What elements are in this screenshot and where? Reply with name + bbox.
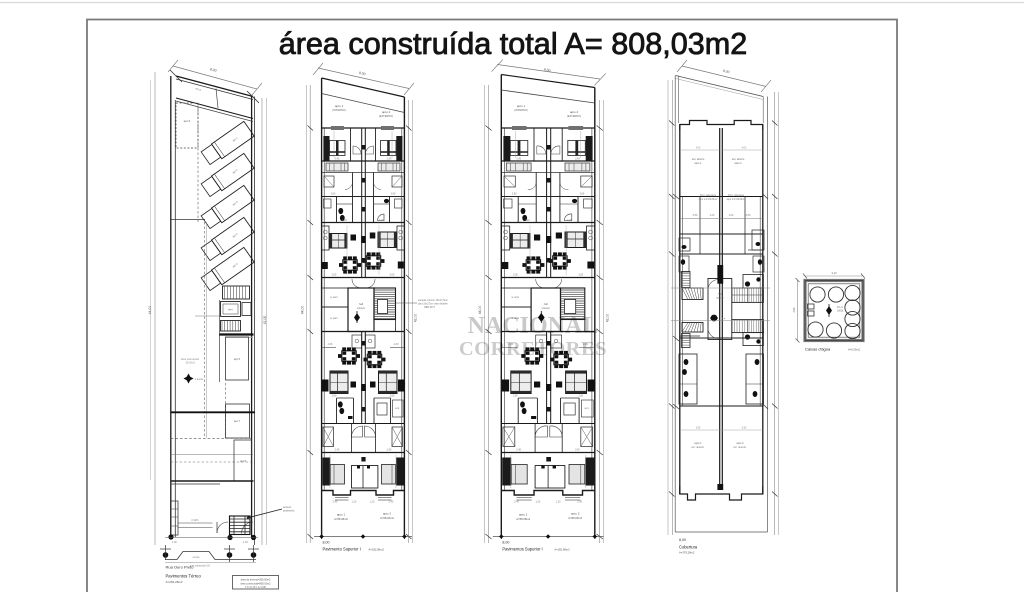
svg-text:A=182,98m2: A=182,98m2 bbox=[369, 548, 385, 552]
svg-text:3,05: 3,05 bbox=[390, 274, 395, 277]
svg-text:2,45: 2,45 bbox=[577, 501, 582, 504]
svg-text:a.m.: a.m. bbox=[395, 407, 400, 410]
svg-text:42,00: 42,00 bbox=[606, 314, 610, 323]
svg-text:Cobertura: Cobertura bbox=[679, 545, 698, 550]
svg-text:a. serv: a. serv bbox=[330, 296, 338, 299]
svg-text:i=12%: i=12% bbox=[191, 519, 199, 522]
svg-text:hall: hall bbox=[359, 302, 363, 306]
svg-text:2,30: 2,30 bbox=[328, 343, 333, 346]
svg-text:a.m.: a.m. bbox=[585, 407, 590, 410]
svg-text:1,20: 1,20 bbox=[342, 219, 347, 222]
svg-text:NACIONAL: NACIONAL bbox=[468, 313, 599, 339]
svg-text:terr. descob.: terr. descob. bbox=[733, 446, 746, 449]
svg-text:apto 2: apto 2 bbox=[736, 441, 744, 445]
svg-text:apto 2: apto 2 bbox=[570, 110, 579, 114]
svg-text:apto 2: apto 2 bbox=[382, 110, 391, 114]
svg-text:15,00m2: 15,00m2 bbox=[185, 362, 195, 365]
svg-text:1,00: 1,00 bbox=[172, 541, 177, 544]
svg-text:elev: elev bbox=[228, 308, 233, 312]
svg-text:2,80: 2,80 bbox=[391, 193, 396, 196]
svg-text:2,80: 2,80 bbox=[513, 395, 518, 398]
svg-text:1 árvore: 1 árvore bbox=[195, 378, 204, 381]
svg-text:Pavimentos Superior I: Pavimentos Superior I bbox=[502, 547, 542, 552]
svg-text:2,45: 2,45 bbox=[514, 501, 519, 504]
svg-text:2,30: 2,30 bbox=[394, 343, 399, 346]
svg-text:1,20: 1,20 bbox=[556, 501, 561, 504]
svg-text:hall: hall bbox=[718, 293, 722, 296]
svg-text:2,45: 2,45 bbox=[335, 449, 340, 452]
svg-text:b.q.: b.q. bbox=[722, 318, 726, 320]
svg-text:(INTERNO): (INTERNO) bbox=[332, 108, 346, 112]
svg-text:44,00: 44,00 bbox=[301, 306, 305, 315]
svg-text:Rua Ouro Preto: Rua Ouro Preto bbox=[166, 565, 195, 570]
svg-text:apto 1: apto 1 bbox=[695, 162, 703, 165]
svg-text:Caixas d'água: Caixas d'água bbox=[805, 347, 831, 352]
svg-text:1,20: 1,20 bbox=[525, 219, 530, 222]
svg-text:3,95: 3,95 bbox=[742, 428, 747, 430]
svg-text:A=9,30m2: A=9,30m2 bbox=[848, 348, 860, 352]
svg-text:1,20: 1,20 bbox=[243, 541, 248, 544]
svg-text:apto 1: apto 1 bbox=[517, 104, 526, 108]
svg-text:Proj. cobertura: Proj. cobertura bbox=[700, 194, 716, 197]
svg-text:apto 2: apto 2 bbox=[571, 512, 580, 516]
svg-text:Pavimento Superior I: Pavimento Superior I bbox=[323, 547, 361, 552]
svg-text:T.O.=0,70 C.A.=2,88: T.O.=0,70 C.A.=2,88 bbox=[245, 586, 267, 589]
svg-text:8,00: 8,00 bbox=[679, 538, 686, 542]
svg-text:1,20: 1,20 bbox=[536, 501, 541, 504]
svg-text:comum: comum bbox=[357, 307, 365, 310]
svg-text:2,45: 2,45 bbox=[575, 158, 580, 161]
svg-text:2,45: 2,45 bbox=[387, 158, 392, 161]
svg-text:apt 9: apt 9 bbox=[184, 119, 191, 123]
svg-text:2,80: 2,80 bbox=[390, 395, 395, 398]
svg-text:3,95: 3,95 bbox=[696, 428, 701, 430]
svg-text:44,01: 44,01 bbox=[148, 306, 152, 315]
svg-text:rampa: rampa bbox=[193, 556, 200, 559]
svg-text:apt 8: apt 8 bbox=[240, 459, 246, 463]
svg-text:3,50: 3,50 bbox=[746, 214, 751, 217]
svg-text:2,45: 2,45 bbox=[575, 449, 580, 452]
svg-text:2,45: 2,45 bbox=[516, 449, 521, 452]
svg-text:A=58,08m2: A=58,08m2 bbox=[334, 517, 348, 521]
svg-text:8,00: 8,00 bbox=[502, 541, 509, 545]
svg-text:apto 2: apto 2 bbox=[735, 162, 743, 165]
svg-text:A=378,28m2: A=378,28m2 bbox=[679, 551, 695, 555]
svg-text:1,20: 1,20 bbox=[352, 501, 357, 504]
svg-text:A=58,06m2: A=58,06m2 bbox=[380, 516, 394, 520]
svg-text:2,80: 2,80 bbox=[578, 395, 583, 398]
svg-text:8,00: 8,00 bbox=[323, 541, 330, 545]
svg-text:área construída=808,03m2: área construída=808,03m2 bbox=[241, 583, 272, 586]
svg-text:2,80: 2,80 bbox=[331, 193, 336, 196]
svg-text:NBR 9077: NBR 9077 bbox=[424, 306, 436, 309]
svg-text:A=58,06m2: A=58,06m2 bbox=[568, 516, 582, 520]
svg-text:1,00: 1,00 bbox=[729, 214, 734, 217]
svg-text:(EXTERNO): (EXTERNO) bbox=[379, 114, 393, 118]
svg-text:3,05: 3,05 bbox=[332, 274, 337, 277]
svg-text:apt 7: apt 7 bbox=[234, 419, 241, 423]
svg-text:apto 1: apto 1 bbox=[335, 104, 344, 108]
svg-text:área construída total A= 808,0: área construída total A= 808,03m2 bbox=[279, 27, 748, 61]
svg-text:área permeável: área permeável bbox=[181, 357, 199, 361]
svg-text:comum: comum bbox=[716, 298, 724, 300]
svg-text:hall: hall bbox=[544, 302, 548, 306]
svg-text:42,00: 42,00 bbox=[263, 316, 267, 325]
svg-text:2,45: 2,45 bbox=[387, 449, 392, 452]
svg-text:2,45: 2,45 bbox=[335, 158, 340, 161]
svg-text:apto 1: apto 1 bbox=[337, 513, 346, 517]
svg-text:2,45: 2,45 bbox=[333, 501, 338, 504]
svg-text:2,45: 2,45 bbox=[516, 158, 521, 161]
svg-text:a. serv: a. serv bbox=[330, 317, 338, 320]
svg-text:pedestres: pedestres bbox=[283, 508, 295, 512]
svg-text:1,20: 1,20 bbox=[379, 219, 384, 222]
svg-text:1,00: 1,00 bbox=[710, 214, 715, 217]
svg-text:A=282,28m2: A=282,28m2 bbox=[166, 580, 183, 584]
svg-text:3,10: 3,10 bbox=[831, 271, 837, 275]
svg-text:apto 1 A=29,86m2: apto 1 A=29,86m2 bbox=[699, 198, 718, 201]
svg-text:apto 1: apto 1 bbox=[694, 441, 702, 445]
svg-text:A=58,08m2: A=58,08m2 bbox=[516, 517, 530, 521]
svg-text:apto 1: apto 1 bbox=[519, 513, 528, 517]
svg-text:2,80: 2,80 bbox=[512, 193, 517, 196]
svg-text:terr. descob.: terr. descob. bbox=[691, 446, 704, 449]
svg-text:2,80: 2,80 bbox=[792, 307, 796, 313]
svg-text:apt 6: apt 6 bbox=[234, 357, 241, 361]
svg-text:apto 2: apto 2 bbox=[383, 512, 392, 516]
svg-text:2,80: 2,80 bbox=[580, 193, 585, 196]
svg-text:2,80: 2,80 bbox=[332, 395, 337, 398]
svg-text:CORRETORES: CORRETORES bbox=[459, 338, 607, 360]
svg-text:apto 2 A=29,86m2: apto 2 A=29,86m2 bbox=[727, 198, 746, 201]
svg-text:a. serv: a. serv bbox=[512, 296, 520, 299]
svg-text:4,00: 4,00 bbox=[742, 148, 747, 150]
svg-text:1000L: 1000L bbox=[837, 310, 844, 313]
svg-text:1,20: 1,20 bbox=[370, 501, 375, 504]
svg-text:A=182,98m2: A=182,98m2 bbox=[554, 548, 570, 552]
svg-text:2,45: 2,45 bbox=[389, 501, 394, 504]
svg-text:(INTERNO): (INTERNO) bbox=[514, 108, 528, 112]
svg-text:3,05: 3,05 bbox=[513, 274, 518, 277]
svg-text:terr. aberto: terr. aberto bbox=[692, 157, 705, 161]
svg-text:42,00: 42,00 bbox=[414, 314, 418, 323]
svg-text:1,20: 1,20 bbox=[567, 219, 572, 222]
svg-text:área do terreno=280,00m2: área do terreno=280,00m2 bbox=[241, 579, 271, 582]
svg-text:(EXTERNO): (EXTERNO) bbox=[567, 114, 581, 118]
svg-text:Proj. cobertura: Proj. cobertura bbox=[728, 194, 744, 197]
svg-text:4,00: 4,00 bbox=[696, 148, 701, 150]
svg-text:3,50: 3,50 bbox=[693, 214, 698, 217]
svg-text:terr. aberto: terr. aberto bbox=[732, 157, 745, 161]
svg-text:Pavimentos Térreo: Pavimentos Térreo bbox=[166, 574, 202, 579]
svg-text:comum: comum bbox=[542, 307, 550, 310]
svg-text:3,05: 3,05 bbox=[578, 274, 583, 277]
